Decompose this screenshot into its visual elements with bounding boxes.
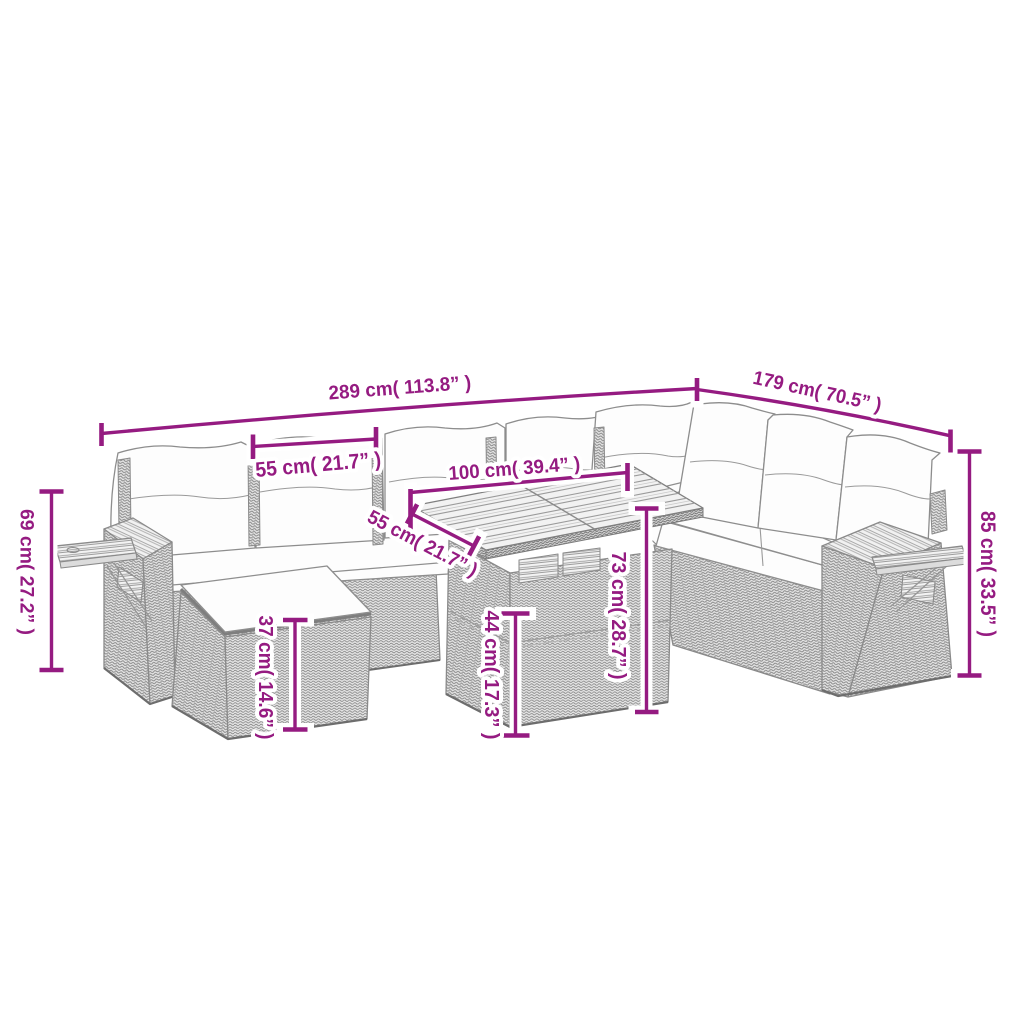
svg-text:69 cm( 27.2” ): 69 cm( 27.2” ) <box>16 509 38 635</box>
svg-text:37 cm( 14.6” ): 37 cm( 14.6” ) <box>254 616 277 740</box>
svg-text:44 cm( 17.3” ): 44 cm( 17.3” ) <box>480 611 503 740</box>
svg-text:85 cm( 33.5” ): 85 cm( 33.5” ) <box>976 511 999 637</box>
svg-text:73 cm( 28.7” ): 73 cm( 28.7” ) <box>607 552 630 680</box>
